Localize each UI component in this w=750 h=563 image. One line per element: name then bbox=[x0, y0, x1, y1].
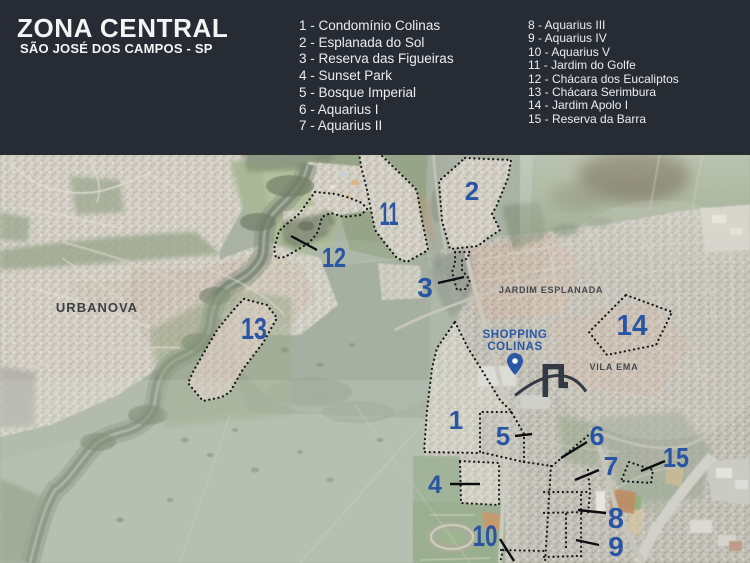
svg-text:9: 9 bbox=[608, 531, 624, 562]
svg-text:6: 6 bbox=[589, 421, 604, 451]
svg-text:JARDIM ESPLANADA: JARDIM ESPLANADA bbox=[499, 285, 603, 295]
svg-text:4: 4 bbox=[428, 471, 442, 499]
svg-text:11: 11 bbox=[380, 196, 399, 232]
svg-text:15: 15 bbox=[663, 442, 689, 473]
svg-text:VILA EMA: VILA EMA bbox=[589, 362, 638, 372]
svg-text:URBANOVA: URBANOVA bbox=[56, 300, 138, 315]
svg-text:COLINAS: COLINAS bbox=[487, 341, 542, 353]
svg-text:14: 14 bbox=[617, 310, 648, 342]
svg-text:13: 13 bbox=[241, 311, 267, 346]
svg-text:1: 1 bbox=[449, 405, 463, 435]
svg-text:5: 5 bbox=[496, 421, 510, 451]
svg-text:7: 7 bbox=[604, 451, 618, 481]
svg-text:12: 12 bbox=[322, 242, 346, 273]
svg-text:10: 10 bbox=[473, 520, 498, 553]
svg-text:SHOPPING: SHOPPING bbox=[483, 329, 548, 341]
svg-text:3: 3 bbox=[417, 272, 433, 303]
svg-text:2: 2 bbox=[465, 176, 479, 206]
